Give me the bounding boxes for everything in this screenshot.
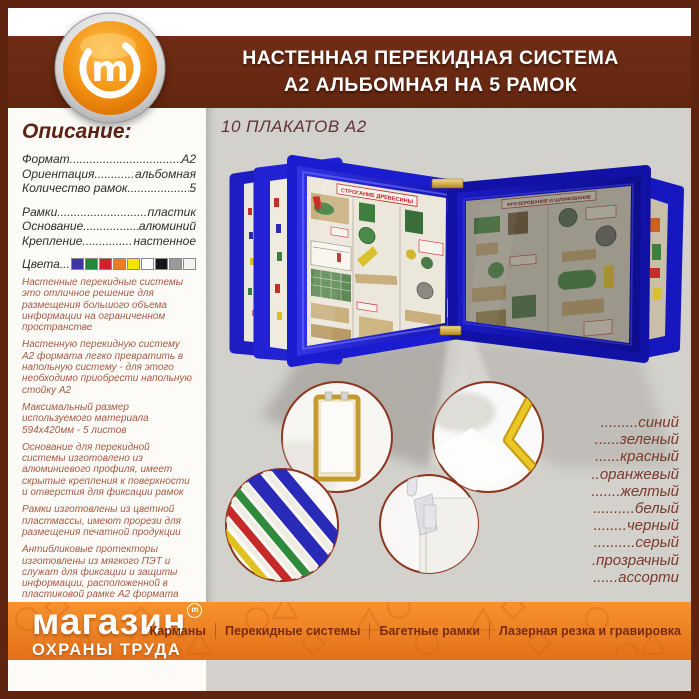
color-option: ......красный [591,448,679,465]
menu-item-baguette-frames[interactable]: Багетные рамки [379,624,479,638]
color-option: ......зеленый [591,431,679,448]
spec-mount: Креплениенастенное [22,234,196,249]
description-paragraph: Рамки изготовлены из цветной пластмассы,… [22,504,194,538]
color-option: .......желтый [591,483,679,500]
swatch-blue [71,258,84,270]
spec-frame-count: Количество рамок5 [22,181,196,196]
dot-leader [70,152,182,167]
color-option: ..........серый [591,534,679,551]
dot-leader [57,205,147,220]
swatch-red [99,258,112,270]
spec-base: Основаниеалюминий [22,219,196,234]
available-colors-list: .........синий ......зеленый ......красн… [591,414,679,586]
dot-leader [60,257,69,271]
dot-leader [82,234,133,249]
bottom-strip-right [206,660,691,691]
spec-format: ФорматА2 [22,152,196,167]
svg-text:m: m [91,49,129,90]
description-paragraph: Антибликовые протекторы изготовлены из м… [22,544,194,600]
description-paragraph: Основание для перекидной системы изготов… [22,442,194,498]
swatch-green [85,258,98,270]
description-paragraph: Настенные перекидные системы это отлично… [22,277,194,333]
swatch-orange [113,258,126,270]
color-option: ..........белый [591,500,679,517]
footer-menu: Карманы Перекидные системы Багетные рамк… [150,602,681,660]
title-line-1: НАСТЕННАЯ ПЕРЕКИДНАЯ СИСТЕМА [242,47,618,70]
swatch-gray [169,258,182,270]
color-option: ......ассорти [591,569,679,586]
poster-count-caption: 10 ПЛАКАТОВ А2 [221,117,367,137]
description-sidebar: Описание: ФорматА2 Ориентацияальбомная К… [8,108,206,602]
menu-item-pockets[interactable]: Карманы [150,624,206,638]
menu-divider [215,623,216,639]
description-paragraph: Максимальный размер используемого матери… [22,402,194,436]
spec-frames: Рамкипластик [22,205,196,220]
colors-label: Цвета [22,257,60,271]
color-option: .прозрачный [591,552,679,569]
color-option: ..оранжевый [591,466,679,483]
product-flyer: НАСТЕННАЯ ПЕРЕКИДНАЯ СИСТЕМА А2 АЛЬБОМНА… [0,0,699,699]
swatch-yellow [127,258,140,270]
swatch-black [155,258,168,270]
menu-item-flip-systems[interactable]: Перекидные системы [225,624,360,638]
dot-leader [83,219,139,234]
colors-row: Цвета [22,257,196,271]
dot-leader [128,181,190,196]
menu-divider [369,623,370,639]
description-paragraph: Настенную перекидную систему А2 формата … [22,339,194,395]
swatch-white [141,258,154,270]
color-swatches [71,258,196,270]
color-option: .........синий [591,414,679,431]
swatch-transparent [183,258,196,270]
product-showcase: 10 ПЛАКАТОВ А2 [206,108,691,602]
brand-logo-icon: m [52,10,168,126]
menu-item-laser-cutting[interactable]: Лазерная резка и гравировка [499,624,681,638]
title-line-2: А2 АЛЬБОМНАЯ НА 5 РАМОК [284,74,577,97]
bottom-strip-left [8,660,206,691]
menu-divider [489,623,490,639]
footer-band: магазинm ОХРАНЫ ТРУДА Карманы Перекидные… [8,602,691,660]
dot-leader [94,167,135,182]
color-option: ........черный [591,517,679,534]
flyer-inner: НАСТЕННАЯ ПЕРЕКИДНАЯ СИСТЕМА А2 АЛЬБОМНА… [8,8,691,691]
page-title: НАСТЕННАЯ ПЕРЕКИДНАЯ СИСТЕМА А2 АЛЬБОМНА… [178,36,683,108]
spec-orientation: Ориентацияальбомная [22,167,196,182]
